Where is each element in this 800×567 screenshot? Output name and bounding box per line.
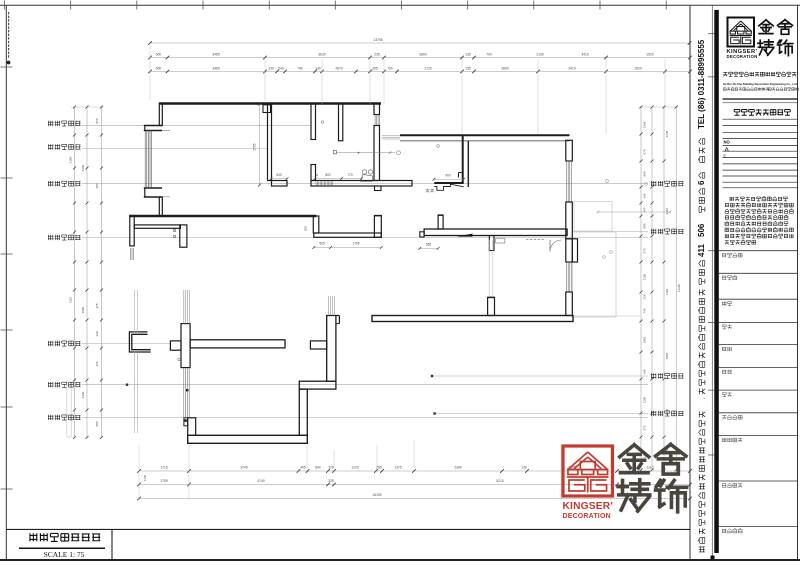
svg-text:3630: 3630 [318, 52, 326, 56]
svg-text:1110: 1110 [69, 297, 73, 304]
svg-text:4740: 4740 [257, 479, 265, 483]
svg-text:1520: 1520 [646, 52, 654, 56]
svg-text:770: 770 [347, 173, 353, 177]
svg-text:He Bei Jin She Building Decora: He Bei Jin She Building Decoration Engin… [723, 82, 797, 86]
svg-text:135: 135 [465, 66, 471, 70]
svg-text:1715: 1715 [160, 466, 168, 470]
svg-text:130: 130 [315, 66, 321, 70]
svg-text:500: 500 [156, 66, 162, 70]
svg-text:1520: 1520 [634, 66, 642, 70]
svg-text:506: 506 [697, 223, 706, 237]
svg-text:345: 345 [643, 193, 647, 198]
svg-text:1120: 1120 [665, 288, 669, 295]
svg-text:675: 675 [643, 149, 647, 154]
svg-text:465: 465 [300, 466, 306, 470]
svg-text:555: 555 [426, 242, 432, 246]
svg-text:DECORATION: DECORATION [727, 54, 758, 59]
svg-text:1375: 1375 [394, 466, 402, 470]
svg-text:130: 130 [521, 466, 527, 470]
svg-text:345: 345 [643, 369, 647, 374]
svg-text:2670: 2670 [335, 66, 343, 70]
svg-text:2130: 2130 [536, 52, 544, 56]
svg-text:NO: NO [724, 140, 731, 145]
svg-text:6: 6 [697, 180, 706, 185]
svg-text:700: 700 [486, 52, 492, 56]
svg-text:SCALE 1: 75: SCALE 1: 75 [44, 550, 85, 559]
svg-text:160: 160 [643, 294, 647, 299]
svg-text:KINGSER': KINGSER' [563, 501, 613, 512]
svg-text:16190: 16190 [372, 493, 381, 497]
svg-text:425: 425 [95, 361, 99, 366]
svg-text:980: 980 [95, 421, 99, 426]
svg-text:1100: 1100 [643, 396, 647, 403]
svg-text:500: 500 [304, 226, 308, 231]
svg-text:885: 885 [643, 223, 647, 228]
svg-text:2610: 2610 [665, 207, 669, 214]
svg-text:675: 675 [643, 425, 647, 430]
svg-text:280: 280 [95, 183, 99, 188]
svg-text:2785: 2785 [253, 143, 257, 150]
svg-text:675: 675 [643, 248, 647, 253]
svg-text:3465: 3465 [212, 66, 220, 70]
svg-text:885: 885 [643, 171, 647, 176]
svg-text:50: 50 [315, 173, 319, 177]
svg-text:135: 135 [465, 52, 471, 56]
svg-text:1190: 1190 [643, 273, 647, 280]
svg-text:265: 265 [372, 66, 378, 70]
svg-text:2800: 2800 [501, 66, 509, 70]
svg-text:3080: 3080 [81, 306, 85, 313]
svg-text:325: 325 [95, 303, 99, 308]
svg-text:540: 540 [278, 66, 284, 70]
svg-text:.: . [700, 398, 707, 400]
svg-text:DECORATION: DECORATION [563, 513, 611, 520]
svg-text:13755: 13755 [373, 38, 382, 42]
svg-text:1345: 1345 [665, 130, 669, 137]
svg-text:5210: 5210 [496, 479, 504, 483]
svg-text:1360: 1360 [81, 164, 85, 171]
svg-text:820: 820 [95, 118, 99, 123]
svg-text:325: 325 [328, 479, 334, 483]
svg-text:1345: 1345 [643, 121, 647, 128]
svg-text:890: 890 [315, 466, 321, 470]
svg-text:325: 325 [328, 466, 334, 470]
svg-text:3465: 3465 [212, 52, 220, 56]
svg-text:130: 130 [268, 66, 274, 70]
svg-text:1865: 1865 [665, 352, 669, 359]
svg-text:2390: 2390 [454, 466, 462, 470]
svg-text:700: 700 [387, 66, 393, 70]
svg-text:11320: 11320 [677, 284, 681, 292]
svg-text:505: 505 [319, 242, 325, 246]
svg-text:2360: 2360 [81, 391, 85, 398]
svg-text:TEL (86) 0311-88995555: TEL (86) 0311-88995555 [697, 39, 706, 129]
svg-text:1130: 1130 [143, 474, 147, 481]
svg-text:540: 540 [276, 173, 282, 177]
svg-text:3745: 3745 [240, 466, 248, 470]
svg-text:235: 235 [374, 52, 380, 56]
svg-text:1755: 1755 [160, 479, 168, 483]
svg-text:3410: 3410 [581, 52, 589, 56]
svg-text:900: 900 [445, 173, 451, 177]
svg-text:1220: 1220 [351, 466, 359, 470]
svg-text:1795: 1795 [352, 242, 359, 246]
svg-text:500: 500 [156, 52, 162, 56]
svg-text:790: 790 [297, 66, 303, 70]
svg-text:2800: 2800 [419, 52, 427, 56]
svg-text:425: 425 [643, 207, 647, 212]
svg-text:3410: 3410 [568, 66, 576, 70]
svg-text:740: 740 [643, 308, 647, 313]
svg-text:2185: 2185 [69, 156, 73, 163]
svg-text:1865: 1865 [643, 336, 647, 343]
svg-text:800: 800 [325, 173, 331, 177]
svg-text:340: 340 [95, 331, 99, 336]
svg-text:411: 411 [697, 244, 706, 257]
svg-text:2130: 2130 [424, 66, 432, 70]
